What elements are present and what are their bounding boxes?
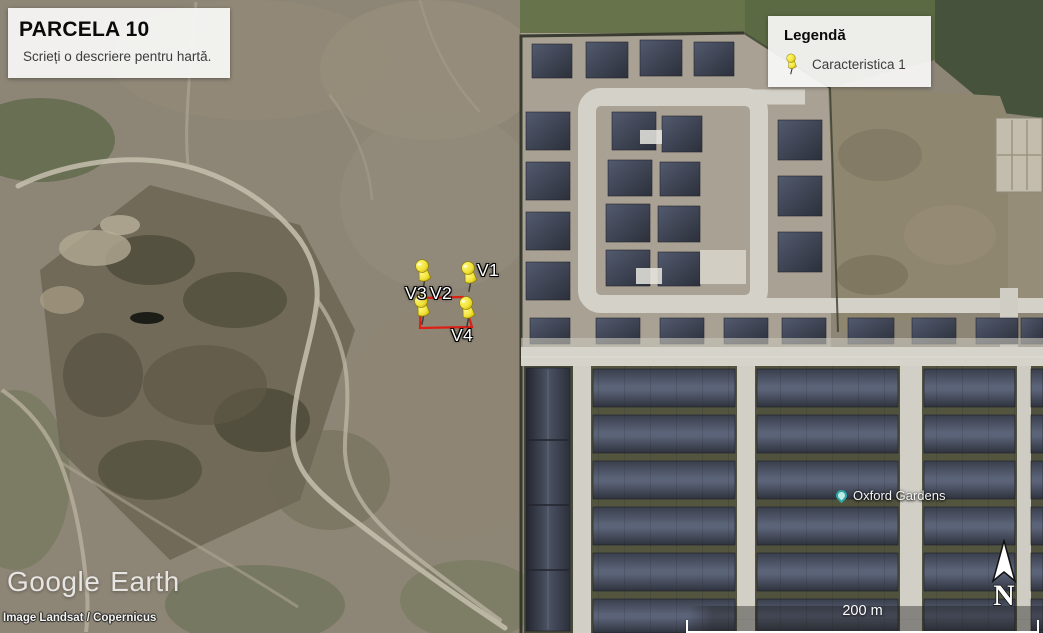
- map-title: PARCELA 10: [19, 18, 230, 42]
- north-label: N: [993, 579, 1015, 609]
- place-label-oxford-gardens: Oxford Gardens: [836, 488, 946, 503]
- legend: Legendă Caracteristica 1: [768, 16, 931, 87]
- imagery-attribution: Image Landsat / Copernicus: [3, 612, 156, 624]
- satellite-imagery[interactable]: [0, 0, 1043, 633]
- logo-earth: Earth: [110, 566, 179, 597]
- north-arrow: N: [984, 539, 1024, 609]
- pushpin-icon: [782, 51, 802, 77]
- google-earth-map-export: V1 V2 V3 V4 Oxford Gardens PARCELA 10 Sc…: [0, 0, 1043, 633]
- map-description: Scrieți o descriere pentru hartă.: [23, 49, 230, 64]
- north-arrow-icon: [993, 541, 1015, 581]
- scale-bar-line: [686, 620, 1039, 633]
- legend-title: Legendă: [784, 27, 931, 44]
- place-marker-icon: [834, 488, 850, 504]
- legend-item-label: Caracteristica 1: [812, 57, 906, 72]
- pin-label-v3: V3: [405, 283, 427, 304]
- pin-label-v4: V4: [451, 325, 473, 346]
- pin-label-v2: V2: [430, 283, 452, 304]
- pin-label-v1: V1: [477, 260, 499, 281]
- legend-item: Caracteristica 1: [784, 52, 931, 76]
- google-earth-logo: GoogleEarth: [7, 566, 180, 598]
- logo-google: Google: [7, 566, 100, 597]
- place-name: Oxford Gardens: [853, 488, 946, 503]
- map-title-box: PARCELA 10 Scrieți o descriere pentru ha…: [8, 8, 230, 78]
